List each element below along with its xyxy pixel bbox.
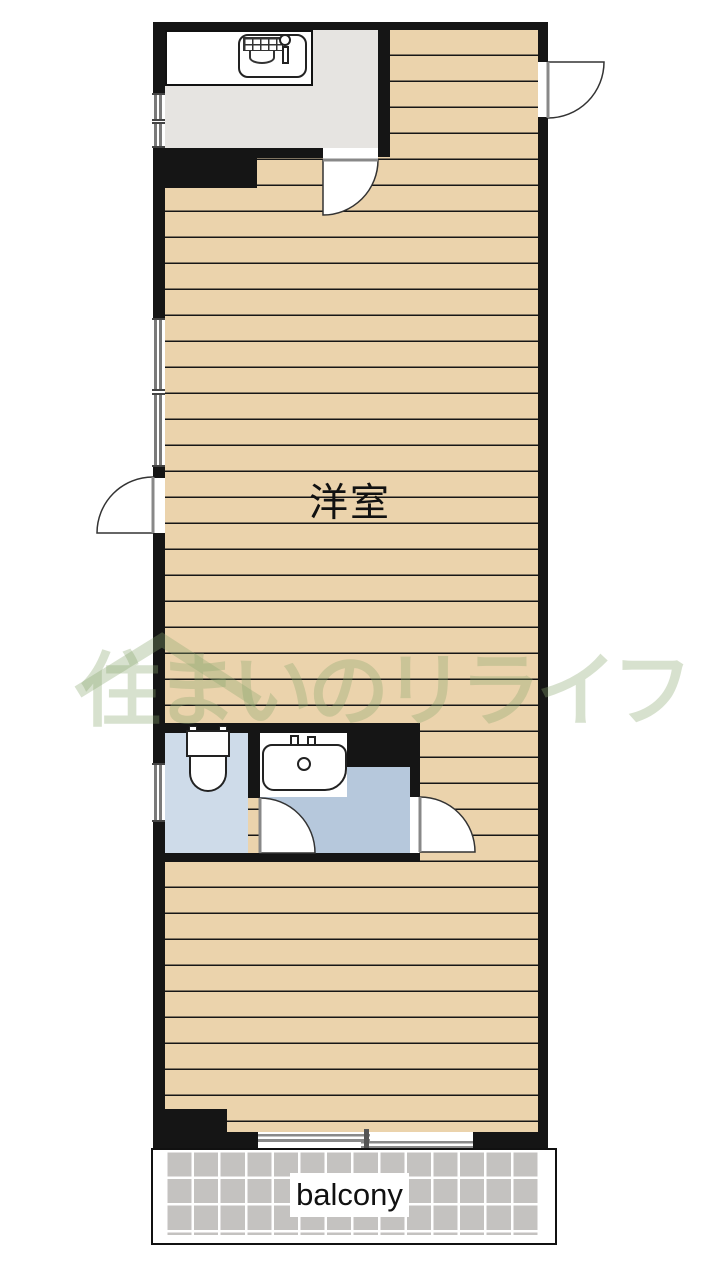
window	[152, 93, 165, 121]
window	[152, 122, 165, 148]
faucet-icon	[279, 34, 291, 46]
door-swing-washroom	[417, 794, 479, 855]
wall-bath-divider	[248, 723, 260, 798]
wall-top	[153, 22, 548, 30]
wall-left	[153, 822, 165, 1148]
wall-right	[538, 22, 548, 62]
window	[152, 763, 165, 822]
window	[152, 318, 165, 391]
wall-bath-right	[410, 723, 420, 797]
door-swing-toilet	[257, 795, 319, 856]
wall-kitchen-block	[153, 148, 257, 188]
wall-step-block	[163, 1109, 227, 1140]
kitchen-sink-curve	[249, 51, 275, 64]
wall-kitchen-bottom	[257, 148, 323, 158]
floorplan: balcony 洋室 住まいのリライフ	[0, 0, 702, 1268]
toilet-icon	[186, 730, 230, 757]
kitchen-drainer-grid	[243, 37, 283, 51]
wall-bottom	[473, 1132, 548, 1148]
door-swing-kitchen	[320, 155, 382, 218]
door-swing-left	[94, 474, 156, 536]
washbasin-icon	[297, 757, 311, 771]
balcony-label: balcony	[290, 1173, 409, 1217]
window	[152, 393, 165, 467]
sliding-door	[258, 1134, 370, 1142]
door-swing-entry	[545, 59, 607, 121]
wall-kitchen-divider	[378, 30, 390, 157]
balcony-label-text: balcony	[296, 1177, 403, 1213]
main-room-label: 洋室	[270, 472, 430, 520]
wall-left	[153, 22, 165, 93]
faucet-icon	[282, 46, 289, 64]
wall-right	[538, 117, 548, 1148]
